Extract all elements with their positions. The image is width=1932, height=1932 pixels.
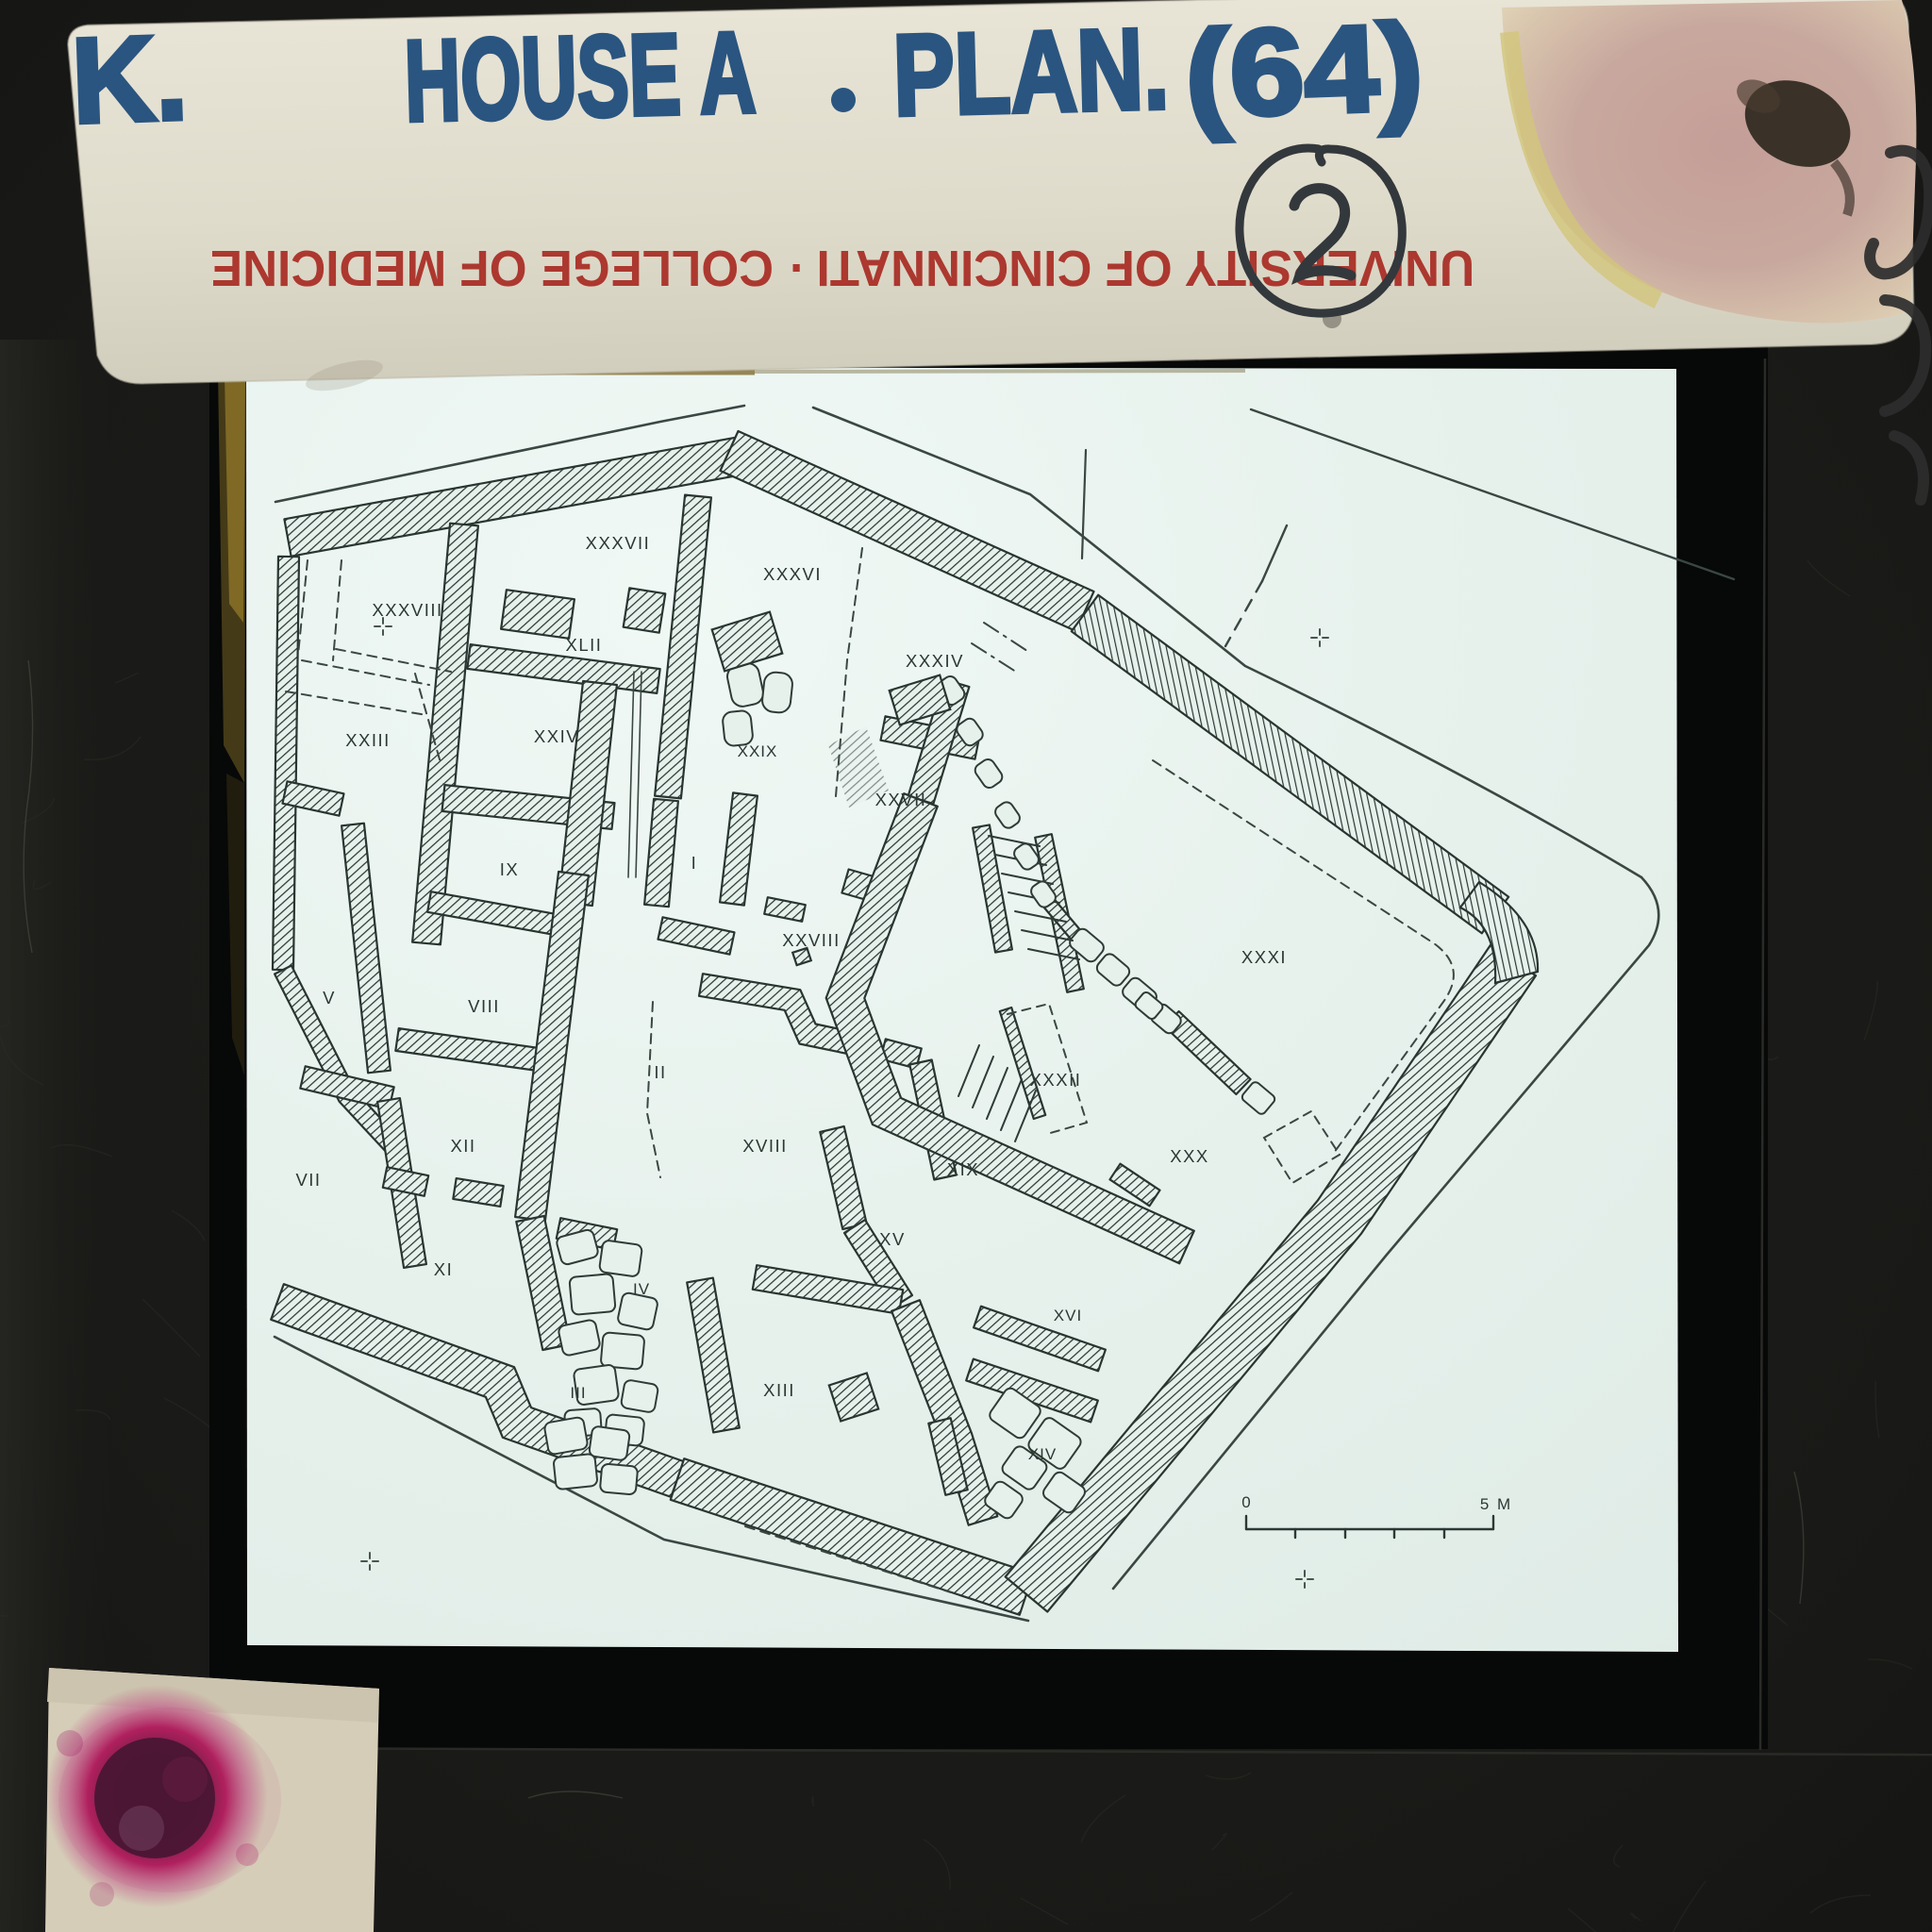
svg-text:XXIX: XXIX (738, 742, 778, 760)
svg-text:XIX: XIX (947, 1159, 979, 1179)
svg-text:XXVII: XXVII (875, 790, 927, 809)
svg-text:VIII: VIII (468, 996, 500, 1016)
svg-text:XXIV: XXIV (534, 726, 579, 746)
svg-text:XXX: XXX (1170, 1146, 1209, 1166)
svg-text:XIII: XIII (763, 1380, 795, 1400)
svg-text:(64): (64) (1183, 0, 1425, 143)
svg-text:I: I (691, 853, 698, 873)
svg-text:XXXVIII: XXXVIII (372, 600, 442, 620)
svg-text:XIV: XIV (1028, 1445, 1057, 1463)
svg-text:XV: XV (879, 1229, 906, 1249)
svg-text:XI: XI (434, 1259, 453, 1279)
svg-text:XXIII: XXIII (345, 730, 391, 750)
svg-text:XLII: XLII (566, 635, 603, 655)
svg-text:XVI: XVI (1054, 1307, 1082, 1324)
svg-text:XXXII: XXXII (1030, 1070, 1082, 1090)
svg-text:V: V (323, 988, 336, 1008)
svg-text:VII: VII (295, 1170, 321, 1190)
svg-text:IX: IX (500, 859, 519, 879)
svg-text:II: II (654, 1062, 666, 1082)
svg-text:HOUSE A: HOUSE A (403, 8, 757, 145)
svg-text:XVIII: XVIII (742, 1136, 788, 1156)
svg-text:XII: XII (450, 1136, 475, 1156)
svg-text:XXXVI: XXXVI (763, 564, 822, 584)
svg-text:0: 0 (1241, 1493, 1250, 1511)
svg-text:IV: IV (633, 1280, 650, 1298)
svg-text:UNIVERSITY OF CINCINNATI · COL: UNIVERSITY OF CINCINNATI · COLLEGE OF ME… (210, 240, 1474, 296)
svg-text:K.: K. (70, 10, 190, 149)
svg-text:XXXVII: XXXVII (586, 533, 651, 553)
svg-text:III: III (570, 1384, 586, 1402)
svg-text:XXVIII: XXVIII (782, 930, 840, 950)
svg-text:XXXI: XXXI (1241, 947, 1287, 967)
svg-text:5 M: 5 M (1480, 1495, 1512, 1513)
svg-text:XXXIV: XXXIV (906, 651, 964, 671)
svg-text:PLAN.: PLAN. (891, 4, 1170, 140)
